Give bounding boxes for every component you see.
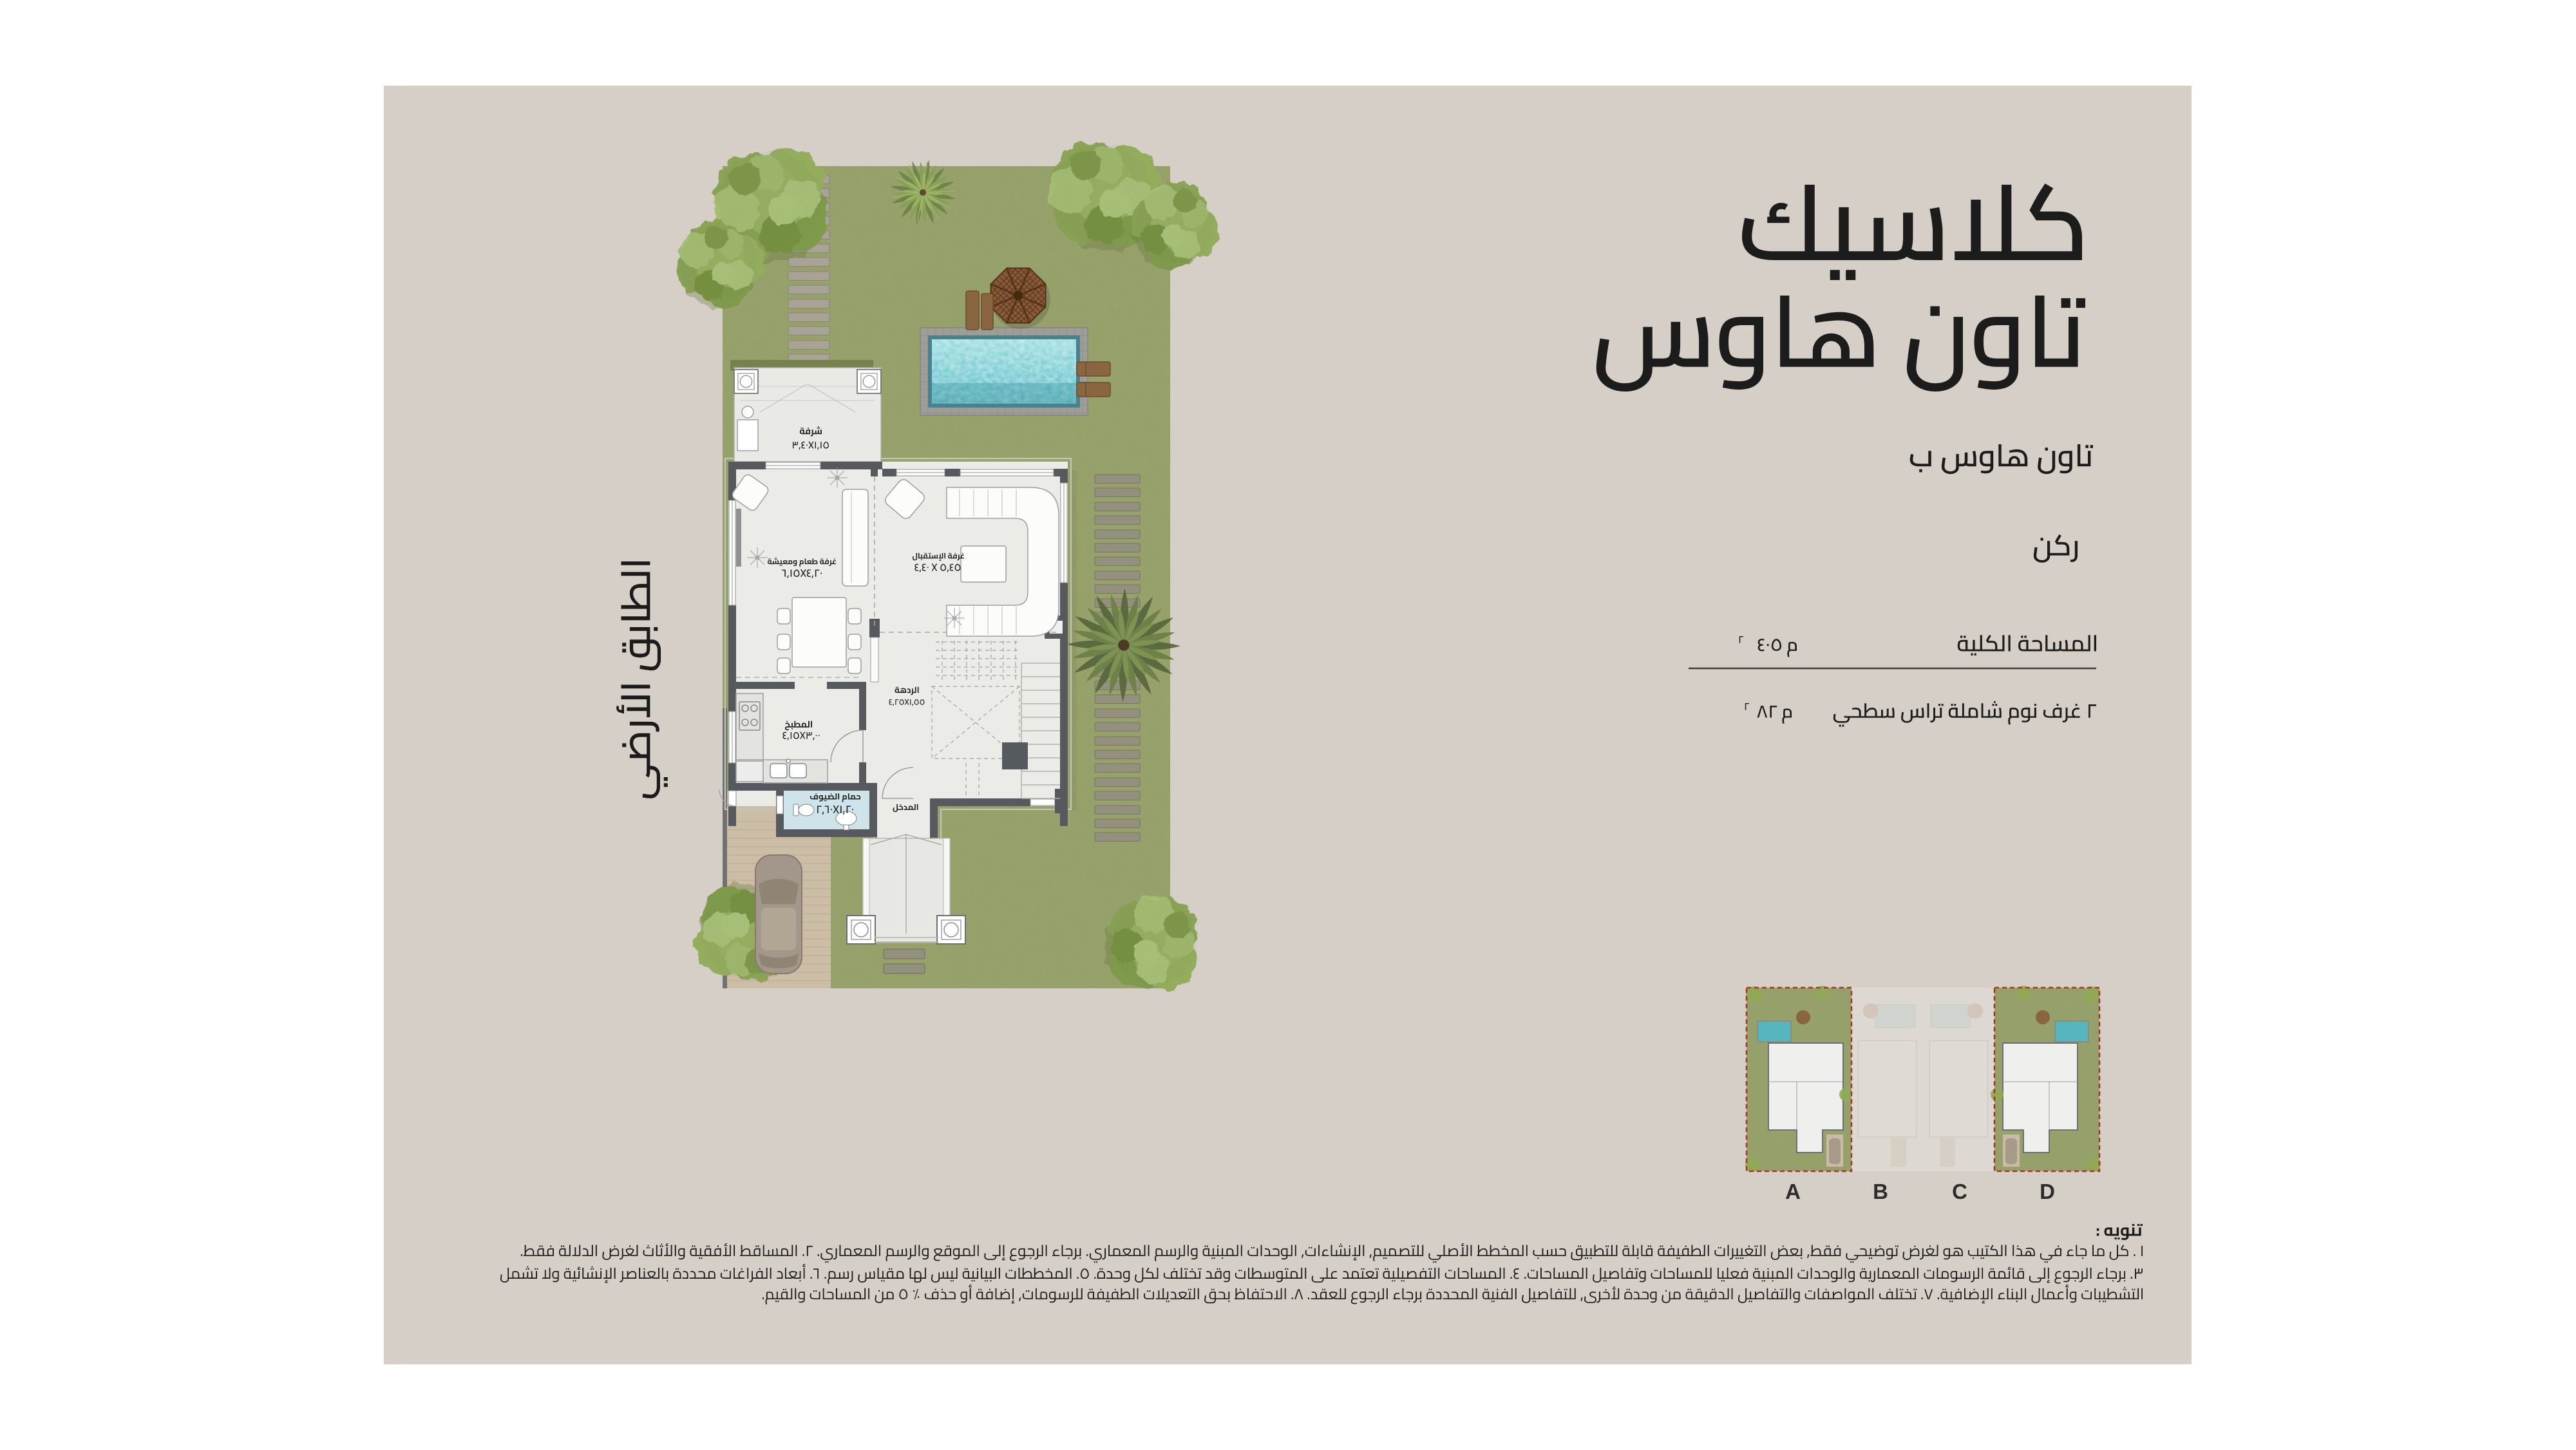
- svg-text:D: D: [2040, 1180, 2055, 1203]
- svg-text:C: C: [1952, 1180, 1967, 1203]
- svg-text:A: A: [1785, 1180, 1801, 1203]
- svg-text:B: B: [1873, 1180, 1888, 1203]
